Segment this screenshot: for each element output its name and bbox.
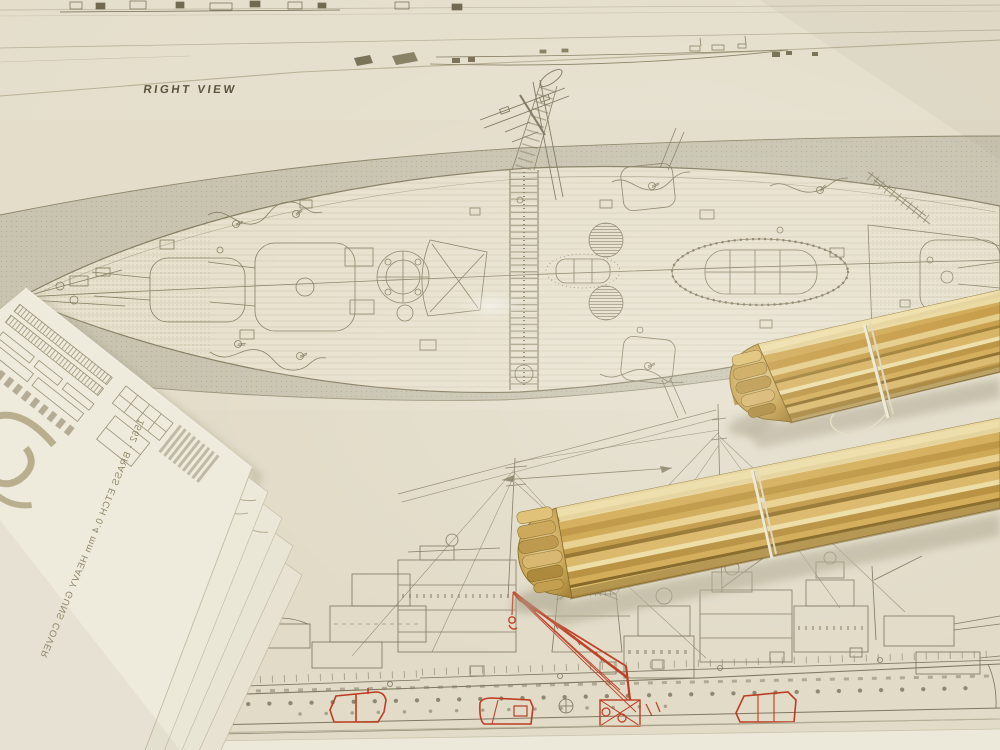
photo: RIGHT VIEW: [0, 0, 1000, 750]
plan-view-caption-text: RIGHT VIEW: [143, 84, 238, 96]
right-view-label: RIGHT VIEW: [143, 84, 238, 96]
photo-canvas: RIGHT VIEW: [0, 0, 1000, 750]
paper-glare: [460, 291, 520, 319]
